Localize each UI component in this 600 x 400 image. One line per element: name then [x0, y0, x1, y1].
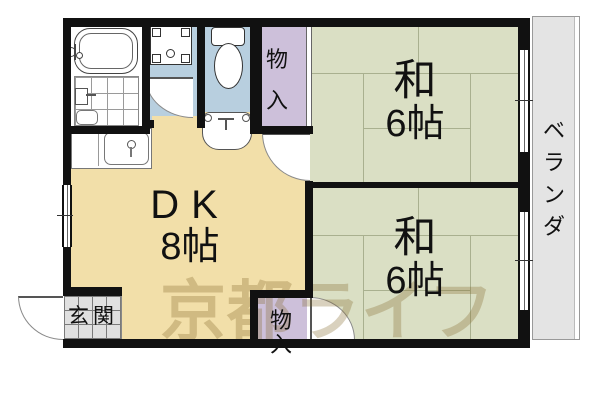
wall-segment — [250, 290, 310, 298]
bath-faucet-icon — [74, 44, 76, 60]
wall-segment — [518, 310, 530, 348]
bath-stool-icon — [76, 110, 98, 125]
wall-segment — [63, 126, 150, 134]
closet-back-partition — [306, 27, 312, 127]
entrance-door-icon — [18, 296, 63, 340]
wall-segment — [250, 18, 262, 133]
wall-segment — [142, 18, 150, 134]
genkan-step-line — [121, 296, 122, 339]
washbasin-corner-icon — [242, 114, 250, 122]
washbasin-corner-icon — [204, 114, 212, 122]
wall-segment — [305, 181, 313, 298]
wall-segment — [305, 182, 524, 188]
washbasin-faucet-icon — [225, 118, 227, 130]
window-icon — [518, 212, 530, 310]
wall-segment — [63, 18, 530, 27]
sink-faucet-icon — [130, 147, 132, 157]
washitsu-top-size: 6帖 — [335, 104, 495, 145]
genkan-label: 玄関 — [66, 306, 120, 329]
bath-faucet-knob-icon — [76, 52, 83, 59]
dk-room-label: DK 8帖 — [110, 184, 270, 268]
wall-segment — [63, 18, 71, 185]
washitsu-top-name: 和 — [335, 58, 495, 104]
shower-spout-icon — [86, 94, 96, 96]
window-tick — [515, 100, 533, 101]
floorplan-canvas: 京都ライフ DK 8帖 和 6帖 和 6帖 物入 物入 玄関 ベランダ — [0, 0, 600, 400]
dk-name: DK — [110, 184, 270, 227]
wall-segment — [518, 18, 530, 50]
washitsu-top-label: 和 6帖 — [335, 58, 495, 145]
wall-segment — [250, 126, 313, 134]
washitsu-bottom-label: 和 6帖 — [335, 215, 495, 302]
closet-bottom-label: 物入 — [258, 309, 307, 357]
wall-segment — [142, 120, 154, 128]
dk-size: 8帖 — [110, 227, 270, 268]
pan-corner-icon — [181, 54, 190, 63]
window-tick — [57, 215, 73, 216]
wall-segment — [197, 18, 205, 128]
washitsu-bottom-size: 6帖 — [335, 261, 495, 302]
wall-segment — [250, 290, 258, 339]
washitsu-bottom-name: 和 — [335, 215, 495, 261]
shower-mixer-icon — [75, 88, 88, 105]
closet-top-label: 物入 — [264, 40, 290, 121]
veranda-label: ベランダ — [541, 115, 567, 243]
pan-drain-icon — [166, 49, 175, 58]
pan-corner-icon — [152, 54, 161, 63]
counter-divider — [98, 129, 99, 166]
bathtub-inner-icon — [79, 33, 133, 69]
window-icon — [518, 50, 530, 152]
dk-floor-hall-patch — [152, 116, 197, 130]
toilet-icon — [214, 43, 243, 89]
pan-corner-icon — [181, 28, 190, 37]
pan-corner-icon — [152, 28, 161, 37]
window-tick — [515, 260, 533, 261]
kitchen-sink-icon — [104, 132, 149, 165]
wall-segment — [64, 287, 122, 296]
window-icon — [62, 185, 72, 247]
